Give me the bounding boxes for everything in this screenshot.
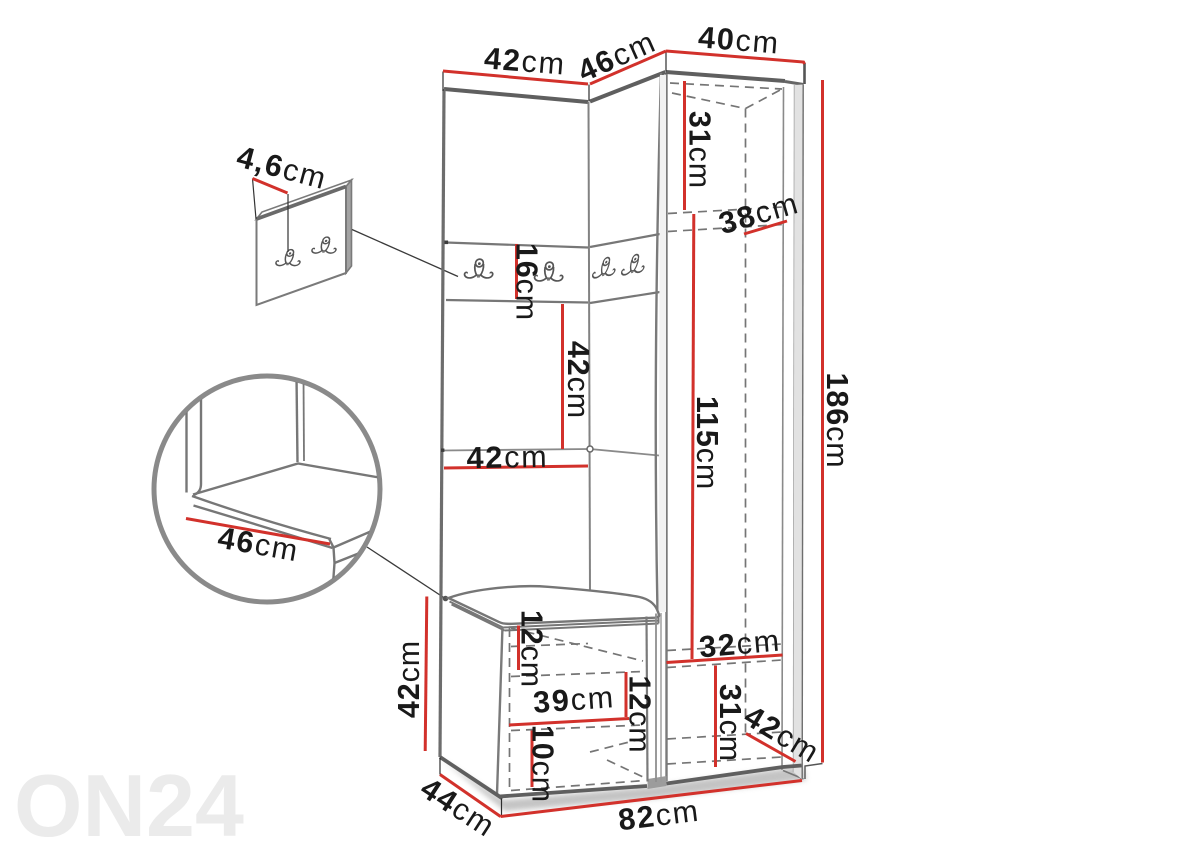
svg-text:12cm: 12cm: [515, 610, 549, 688]
svg-text:10cm: 10cm: [526, 725, 560, 803]
svg-text:32cm: 32cm: [698, 624, 782, 665]
svg-text:42cm: 42cm: [483, 41, 567, 81]
svg-text:42cm: 42cm: [466, 440, 548, 475]
svg-text:ON24: ON24: [14, 756, 244, 855]
svg-text:31cm: 31cm: [683, 111, 717, 189]
svg-text:115cm: 115cm: [690, 396, 724, 490]
svg-text:186cm: 186cm: [820, 372, 854, 468]
svg-text:42cm: 42cm: [392, 640, 426, 718]
svg-text:16cm: 16cm: [510, 243, 544, 321]
svg-text:42cm: 42cm: [561, 341, 595, 419]
svg-text:39cm: 39cm: [532, 680, 616, 720]
svg-text:40cm: 40cm: [697, 20, 781, 60]
svg-text:12cm: 12cm: [623, 675, 657, 753]
